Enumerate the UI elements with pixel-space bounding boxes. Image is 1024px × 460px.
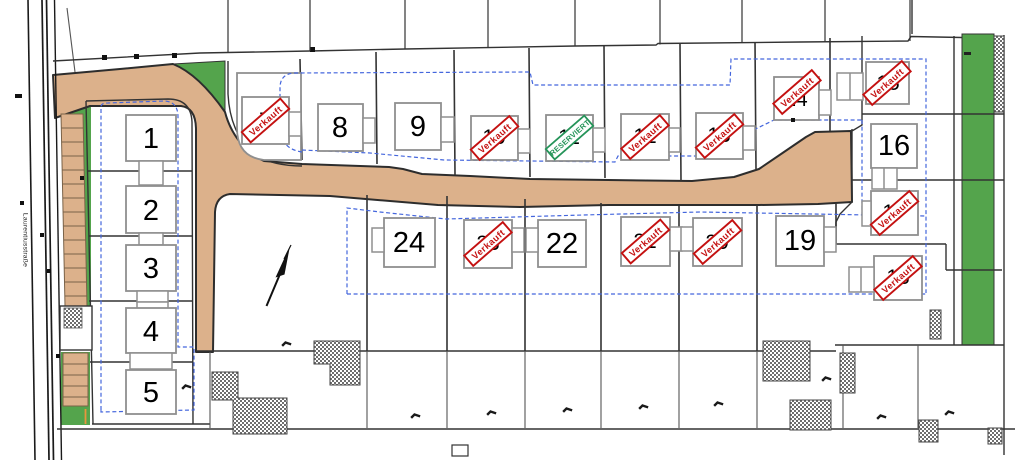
- svg-text:3: 3: [143, 253, 159, 285]
- svg-text:5: 5: [143, 377, 159, 409]
- svg-text:24: 24: [393, 227, 425, 259]
- svg-text:16: 16: [878, 130, 910, 162]
- svg-text:4: 4: [143, 316, 159, 348]
- svg-text:9: 9: [410, 111, 426, 143]
- svg-text:1: 1: [143, 123, 159, 155]
- svg-text:22: 22: [546, 228, 578, 260]
- svg-text:Laurentiusstraße: Laurentiusstraße: [22, 213, 29, 267]
- svg-text:8: 8: [332, 112, 348, 144]
- svg-text:2: 2: [143, 195, 159, 227]
- svg-text:19: 19: [784, 225, 816, 257]
